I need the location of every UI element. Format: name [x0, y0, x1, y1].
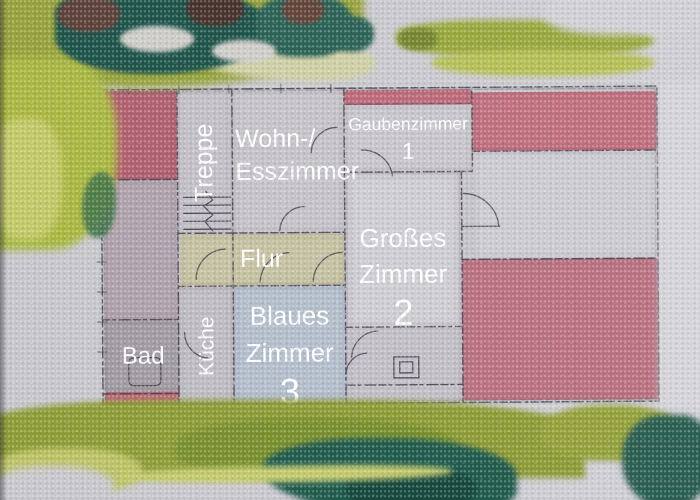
foliage-layer [0, 0, 700, 500]
watercolor-yellow-streak [120, 463, 452, 485]
watercolor-dark-notch [398, 28, 438, 50]
watercolor-painting: Treppe Wohn-/ Esszimmer Gaubenzimmer 1 F… [0, 0, 700, 500]
watercolor-teal-bush [262, 438, 517, 500]
paper-gap [212, 40, 276, 62]
watercolor-pale-fringe [192, 30, 377, 87]
watercolor-olive-blob [0, 0, 364, 88]
watercolor-teal-bush [345, 468, 477, 500]
watercolor-olive-blob [0, 58, 117, 250]
paper-gap [120, 26, 194, 52]
watercolor-leaf-sprig [82, 172, 116, 238]
paper-margin [660, 80, 700, 410]
watercolor-teal-blob [256, 0, 352, 57]
watercolor-olive-stroke [432, 50, 654, 76]
watercolor-brown-blob [186, 0, 244, 26]
watercolor-teal-blob [55, 0, 271, 74]
watercolor-pale-grass [0, 448, 142, 494]
watercolor-olive-stroke [396, 20, 654, 58]
watercolor-teal-blob [328, 16, 374, 52]
watercolor-teal-right [622, 415, 700, 500]
watercolor-grass-band [0, 400, 585, 478]
watercolor-brown-blob [282, 0, 324, 24]
paper-gap [0, 466, 114, 500]
watercolor-bright-green-blob [0, 118, 62, 240]
paper-gap [545, 0, 700, 35]
watercolor-grass-dark [175, 418, 457, 480]
watercolor-brown-blob [58, 0, 120, 32]
watercolor-grass-right [540, 405, 682, 461]
